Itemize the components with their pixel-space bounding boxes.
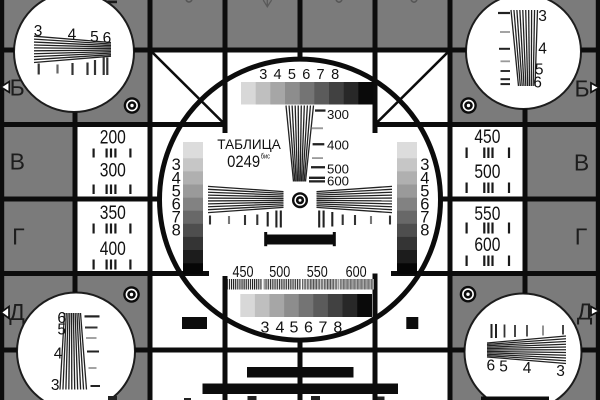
- svg-text:В: В: [10, 149, 25, 175]
- svg-text:4: 4: [523, 360, 532, 377]
- svg-text:3: 3: [259, 67, 267, 83]
- svg-text:3: 3: [556, 363, 565, 380]
- svg-text:8: 8: [333, 319, 342, 336]
- svg-text:3: 3: [261, 319, 270, 336]
- svg-text:550: 550: [307, 264, 328, 281]
- svg-text:600: 600: [327, 173, 349, 188]
- svg-text:6: 6: [486, 357, 495, 374]
- svg-text:5: 5: [499, 359, 508, 376]
- svg-text:4: 4: [276, 319, 285, 336]
- svg-text:В: В: [574, 149, 589, 175]
- svg-text:бис: бис: [261, 153, 271, 161]
- svg-text:400: 400: [327, 138, 349, 153]
- svg-text:Г: Г: [12, 223, 25, 249]
- svg-text:7: 7: [319, 319, 328, 336]
- svg-text:Б: Б: [574, 76, 589, 102]
- svg-text:Г: Г: [575, 223, 588, 249]
- svg-text:450: 450: [233, 264, 254, 281]
- svg-text:4: 4: [538, 41, 547, 58]
- svg-text:6: 6: [304, 319, 313, 336]
- svg-text:5: 5: [288, 67, 296, 83]
- svg-text:200: 200: [100, 127, 126, 148]
- svg-text:6: 6: [302, 67, 310, 83]
- svg-text:0249: 0249: [227, 153, 260, 171]
- svg-text:5: 5: [290, 319, 299, 336]
- svg-text:3: 3: [34, 23, 43, 40]
- svg-text:ТАБЛИЦА: ТАБЛИЦА: [217, 136, 281, 152]
- svg-text:4: 4: [274, 67, 282, 83]
- svg-text:4: 4: [54, 345, 63, 362]
- svg-text:550: 550: [474, 204, 500, 225]
- svg-text:5: 5: [57, 321, 66, 338]
- svg-text:6: 6: [533, 75, 542, 92]
- svg-text:6: 6: [103, 30, 112, 47]
- svg-text:350: 350: [100, 203, 126, 224]
- svg-text:Д: Д: [9, 299, 25, 325]
- svg-text:8: 8: [331, 67, 339, 83]
- svg-text:3: 3: [51, 377, 60, 394]
- svg-text:3: 3: [538, 8, 547, 25]
- svg-text:450: 450: [474, 127, 500, 148]
- svg-text:500: 500: [474, 162, 500, 183]
- svg-text:400: 400: [100, 239, 126, 260]
- svg-text:5: 5: [90, 29, 99, 46]
- svg-text:7: 7: [317, 67, 325, 83]
- svg-text:300: 300: [327, 107, 349, 122]
- svg-text:300: 300: [100, 161, 126, 182]
- svg-text:600: 600: [474, 235, 500, 256]
- svg-text:500: 500: [269, 264, 290, 281]
- svg-text:8: 8: [420, 222, 429, 240]
- svg-text:4: 4: [68, 26, 77, 43]
- svg-text:600: 600: [346, 264, 367, 281]
- svg-text:8: 8: [172, 222, 181, 240]
- svg-text:Б: Б: [10, 74, 25, 100]
